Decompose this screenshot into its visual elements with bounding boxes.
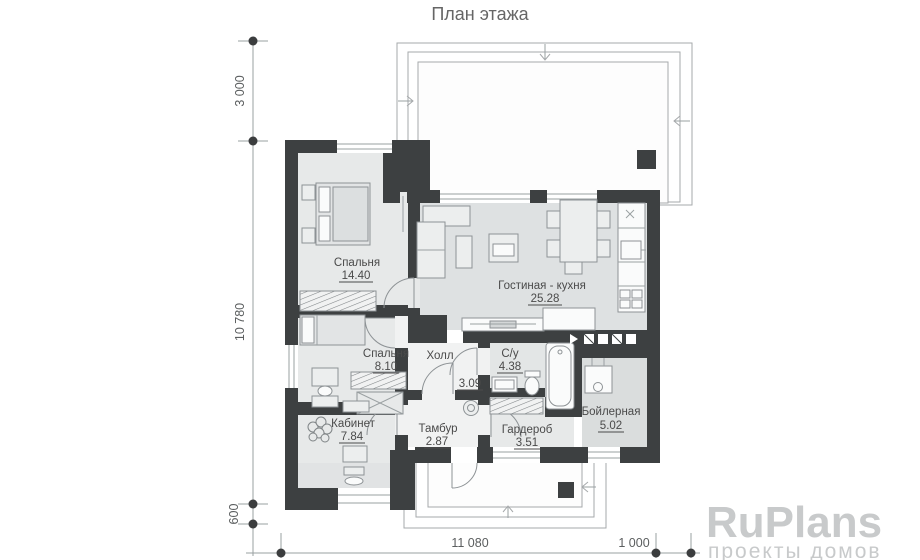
roof-slope-arrow-right <box>398 96 413 106</box>
svg-text:3.09: 3.09 <box>459 378 481 390</box>
window-living-1 <box>440 190 530 203</box>
dim-label-3000: 3 000 <box>233 75 247 106</box>
svg-text:Спальня: Спальня <box>334 257 380 269</box>
entrance-porch <box>404 461 606 528</box>
window-bedroom-second <box>285 345 298 388</box>
coffee-table-icon <box>489 234 518 262</box>
porch-column <box>558 482 574 498</box>
svg-text:Холл: Холл <box>426 350 453 362</box>
single-bed-icon <box>300 315 365 345</box>
porch-arrow-up <box>503 506 513 518</box>
svg-text:8.10: 8.10 <box>375 361 397 373</box>
svg-text:С/у: С/у <box>501 348 519 360</box>
sink-icon <box>492 377 517 392</box>
svg-text:Спальня: Спальня <box>363 348 409 360</box>
svg-text:Бойлерная: Бойлерная <box>582 406 641 418</box>
kitchen-counter-icon <box>618 203 646 312</box>
bathtub-icon <box>546 343 574 409</box>
svg-text:Кабинет: Кабинет <box>331 418 375 430</box>
window-office <box>338 488 390 510</box>
radiator-icon <box>400 192 407 236</box>
dim-label-10780: 10 780 <box>233 303 247 341</box>
svg-text:2.87: 2.87 <box>426 436 448 448</box>
svg-text:4.38: 4.38 <box>499 361 521 373</box>
sofa-icon <box>417 206 472 278</box>
svg-text:Гостиная - кухня: Гостиная - кухня <box>498 280 586 292</box>
entrance-opening <box>451 447 477 463</box>
tv-bench-icon <box>462 318 544 331</box>
dim-label-600: 600 <box>227 504 241 525</box>
svg-text:Гардероб: Гардероб <box>502 424 553 436</box>
dimension-bottom-horizontal: 11 080 1 000 <box>246 533 700 558</box>
stool-icon <box>464 401 479 416</box>
window-boiler <box>588 447 620 463</box>
svg-text:5.02: 5.02 <box>600 420 622 432</box>
floor-plan-canvas: План этажа <box>0 0 920 560</box>
svg-text:Тамбур: Тамбур <box>418 423 457 435</box>
roof-slope-arrow-left <box>674 116 690 126</box>
terrace-column <box>637 150 656 169</box>
logo-tagline-text: проекты домов <box>708 540 882 560</box>
svg-text:25.28: 25.28 <box>531 293 560 305</box>
page-title: План этажа <box>431 4 529 24</box>
toilet-icon <box>525 371 540 395</box>
svg-text:3.51: 3.51 <box>516 437 538 449</box>
dim-label-1000: 1 000 <box>618 536 649 550</box>
window-bedroom-main <box>337 140 392 153</box>
logo: RuPlans проекты домов <box>706 498 882 560</box>
dimension-left-vertical: 3 000 10 780 600 <box>227 37 268 557</box>
dim-label-11080: 11 080 <box>451 536 488 550</box>
svg-text:14.40: 14.40 <box>342 270 371 282</box>
svg-text:7.84: 7.84 <box>341 431 364 443</box>
kitchen-island-icon <box>543 308 595 330</box>
terrace <box>397 43 692 205</box>
